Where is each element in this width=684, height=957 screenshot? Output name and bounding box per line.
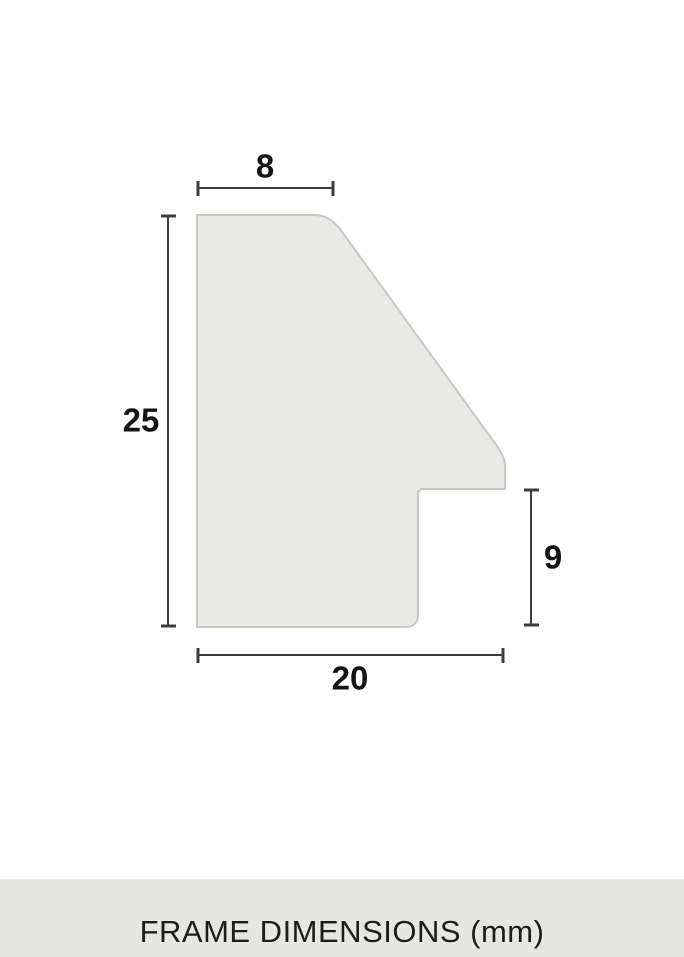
bottom-width-label: 20: [332, 662, 369, 695]
footer-band: FRAME DIMENSIONS (mm): [0, 879, 684, 957]
frame-dimensions-page: 8 25 9 20 FRAME DIMENSIONS (mm): [0, 0, 684, 957]
overall-height-label: 25: [123, 404, 160, 437]
frame-profile-shape: [197, 215, 505, 627]
top-width-label: 8: [256, 150, 274, 183]
rabbet-height-label: 9: [544, 541, 562, 574]
frame-profile-diagram: [0, 0, 684, 957]
dimension-line-rabbet-height: [524, 490, 539, 625]
dimension-line-overall-height: [161, 216, 176, 626]
footer-caption: FRAME DIMENSIONS (mm): [140, 916, 545, 947]
